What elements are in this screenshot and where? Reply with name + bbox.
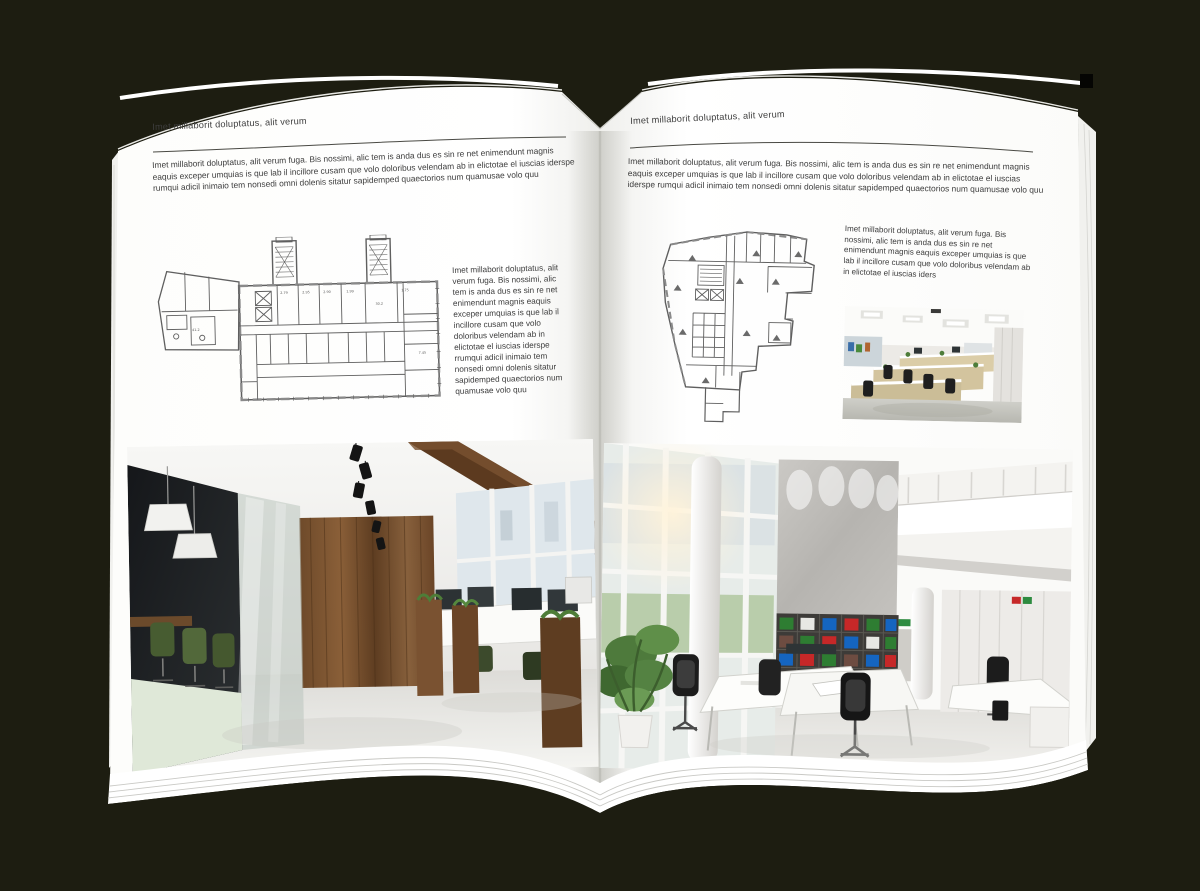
safety-sign-red: [1012, 597, 1021, 604]
right-small-office-photo: [842, 306, 1024, 423]
left-floor-plan: 2.79 2.95 2.90 1.99 1.75 7.45 30.2 41.2: [150, 233, 446, 410]
wood-wall: [299, 516, 436, 688]
waste-bin: [992, 700, 1008, 720]
plan-annotation: 30.2: [375, 302, 383, 306]
plan-annotation: 2.95: [302, 290, 310, 294]
mezzanine-balcony: [897, 459, 1073, 581]
right-office-photo: [599, 443, 1072, 775]
plan-annotation: 1.75: [401, 288, 409, 292]
brochure-mockup-scene: Imet millaborit doluptatus, alit verum I…: [0, 0, 1200, 891]
cover-corner-notch: [1080, 74, 1093, 88]
plan-annotation: 41.2: [192, 328, 200, 332]
right-floor-plan: [645, 224, 839, 426]
safety-sign-green: [1023, 597, 1032, 604]
plan-annotation: 2.90: [323, 290, 331, 294]
right-intro-paragraph: Imet millaborit doluptatus, alit verum f…: [628, 156, 1044, 197]
left-office-photo: [127, 439, 599, 775]
plan-annotation: 1.99: [346, 289, 354, 293]
round-column-2: [910, 587, 934, 699]
plan-annotation: 2.79: [280, 291, 288, 295]
round-column: [688, 456, 722, 762]
right-column-text: Imet millaborit doluptatus, alit verum f…: [843, 224, 1037, 285]
left-column-text: Imet millaborit doluptatus, alit verum f…: [452, 263, 567, 398]
exit-sign: [898, 619, 910, 626]
plan-annotation: 7.45: [419, 351, 427, 355]
